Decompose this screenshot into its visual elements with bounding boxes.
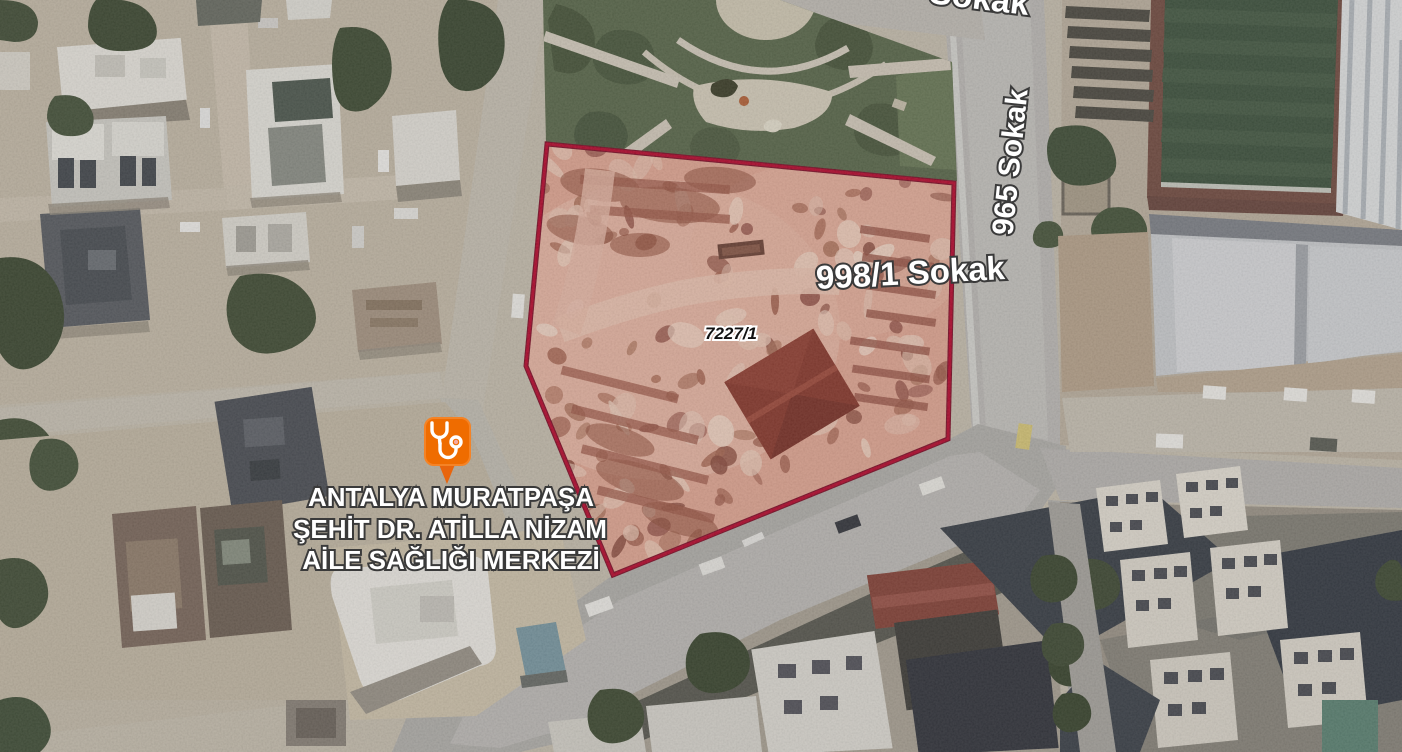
svg-text:7227/1: 7227/1 [705, 324, 757, 343]
svg-text:ŞEHİT DR. ATİLLA NİZAM: ŞEHİT DR. ATİLLA NİZAM [293, 514, 607, 544]
svg-text:ANTALYA MURATPAŞA: ANTALYA MURATPAŞA [308, 482, 594, 512]
svg-text:AİLE SAĞLIĞI MERKEZİ: AİLE SAĞLIĞI MERKEZİ [302, 545, 600, 575]
